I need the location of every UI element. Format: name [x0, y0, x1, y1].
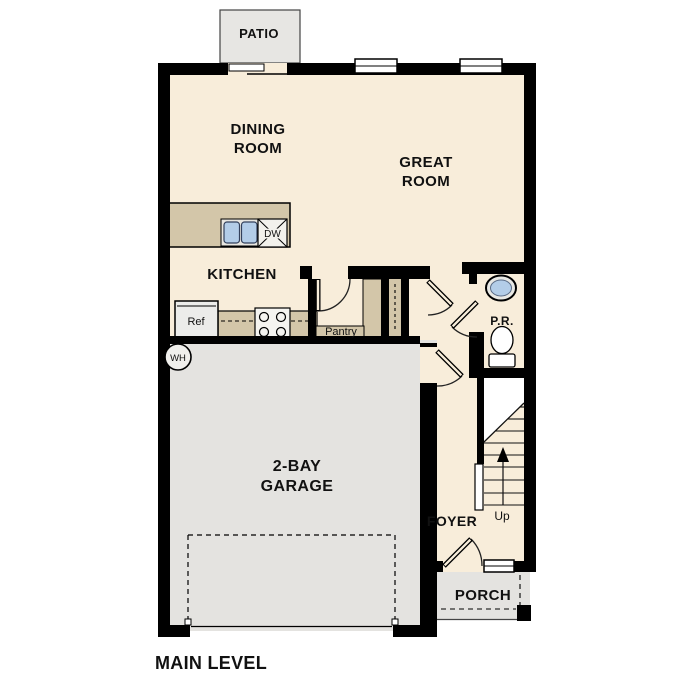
- great-room-label-line1: GREAT: [399, 154, 452, 171]
- patio-sliding-door: [229, 64, 264, 71]
- stairs-up-label: Up: [494, 509, 510, 523]
- garage-door-opening: [420, 347, 437, 383]
- powder-room-label: P.R.: [490, 314, 513, 328]
- pantry-label: Pantry: [325, 326, 357, 338]
- sink-bowl: [224, 222, 240, 243]
- wall-closet-right: [401, 279, 409, 337]
- kitchen-label: KITCHEN: [207, 266, 276, 283]
- great-room-label-line2: ROOM: [402, 173, 450, 190]
- garage-label-line1: 2-BAY: [273, 458, 322, 475]
- toilet-tank: [489, 354, 515, 367]
- wall-right: [524, 63, 536, 572]
- wall-powder-room-bottom: [477, 368, 525, 378]
- toilet-bowl: [491, 327, 513, 354]
- garage-door-track-end: [185, 619, 191, 625]
- pantry-shelf-right: [363, 279, 382, 337]
- wall-pantry-top: [348, 266, 430, 279]
- burner: [260, 313, 269, 322]
- porch-label: PORCH: [455, 587, 511, 604]
- water-heater-label: WH: [170, 353, 186, 364]
- foyer-label: FOYER: [427, 513, 477, 529]
- sink-bowl: [242, 222, 258, 243]
- burner: [277, 328, 286, 337]
- porch-post: [517, 605, 531, 621]
- window: [355, 59, 397, 73]
- wall-pantry-closet: [381, 279, 389, 337]
- stair-handrail: [475, 464, 483, 510]
- wall-powder-room-top: [462, 262, 536, 274]
- wall-kitchen-garage: [158, 336, 420, 344]
- burner: [260, 328, 269, 337]
- wall-garage-right: [420, 343, 437, 637]
- wall-bottom-garage-left: [158, 625, 190, 637]
- wall-pantry-left: [308, 279, 316, 336]
- powder-room-sink-basin: [491, 280, 512, 296]
- window: [484, 560, 514, 572]
- burner: [277, 313, 286, 322]
- refrigerator-label: Ref: [187, 316, 205, 328]
- dining-room-label-line1: DINING: [231, 121, 286, 138]
- wall-pantry-door-jamb: [300, 266, 312, 279]
- patio-label: PATIO: [239, 26, 279, 41]
- floor-plan-drawing: PATIO DINING ROOM GREAT ROOM KITCHEN 2-B…: [0, 0, 687, 687]
- window: [460, 59, 502, 73]
- floor-plan: PATIO DINING ROOM GREAT ROOM KITCHEN 2-B…: [0, 0, 687, 687]
- wall-stairs-left: [477, 378, 484, 464]
- level-title: MAIN LEVEL: [155, 653, 267, 673]
- dishwasher-label: DW: [264, 229, 281, 240]
- wall-powder-room-left-upper: [469, 274, 477, 284]
- garage-label-line2: GARAGE: [261, 478, 334, 495]
- garage-door-track-end: [392, 619, 398, 625]
- dining-room-label-line2: ROOM: [234, 140, 282, 157]
